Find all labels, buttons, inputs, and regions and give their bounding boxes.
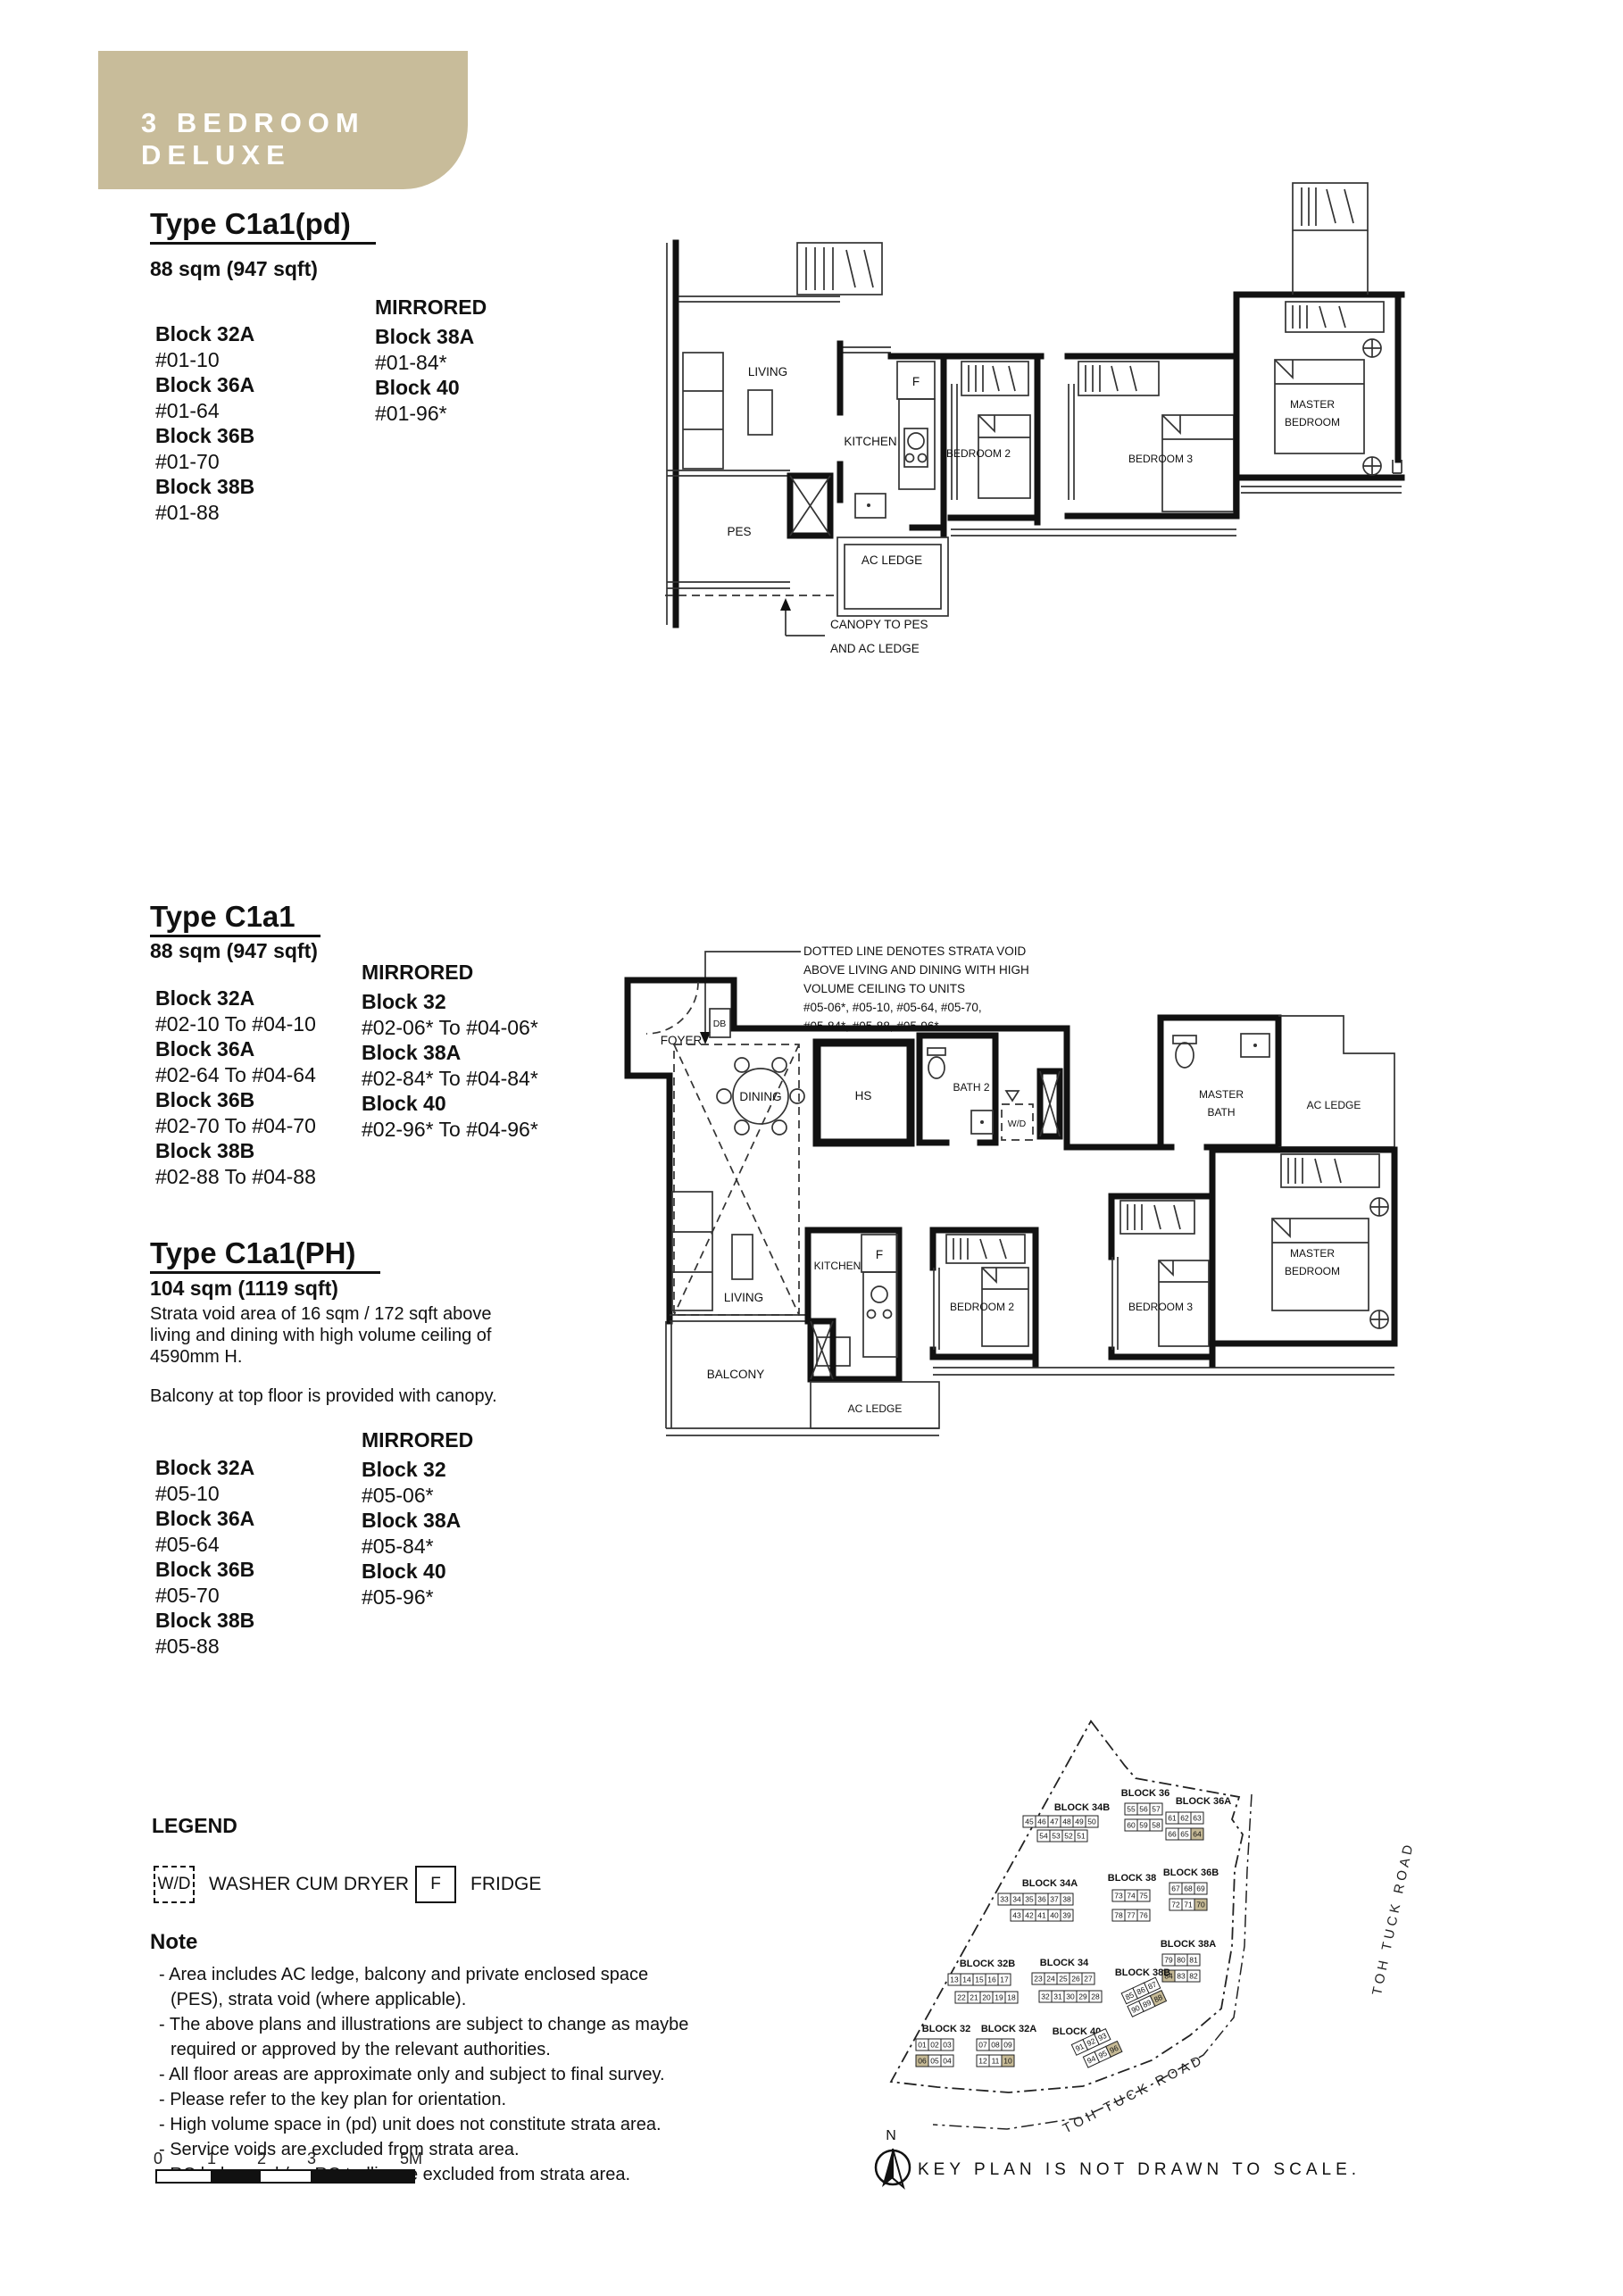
block-units: #05-88 [155, 1634, 254, 1660]
keyplan-unit-number: 73 [1114, 1892, 1123, 1901]
keyplan-unit-number: 08 [991, 2041, 1000, 2050]
plan2-strata-note-line4: #05-06*, #05-10, #05-64, #05-70, [803, 1001, 982, 1014]
keyplan-unit-number: 75 [1139, 1892, 1148, 1901]
keyplan-unit-number: 67 [1171, 1884, 1180, 1893]
plan1-label-master-line1: MASTER [1290, 398, 1335, 411]
block-units: #02-06* To #04-06* [362, 1015, 538, 1041]
scale-tick: 2 [257, 2150, 266, 2168]
keyplan-unit-number: 56 [1139, 1805, 1148, 1814]
keyplan-block: BLOCK 36A616263666564 [1166, 1796, 1231, 1840]
keyplan-unit-number: 71 [1184, 1901, 1193, 1909]
keyplan-unit-number: 11 [992, 2057, 1000, 2066]
keyplan-unit-number: 24 [1046, 1975, 1055, 1984]
section1-right-blocks: Block 38A#01-84*Block 40#01-96* [375, 324, 487, 426]
plan2-label-bedroom2: BEDROOM 2 [950, 1301, 1014, 1313]
block-units: #05-84* [362, 1534, 473, 1560]
keyplan-block-label: BLOCK 32 [922, 2024, 970, 2034]
keyplan-unit-number: 78 [1114, 1911, 1123, 1920]
keyplan-block-label: BLOCK 36B [1163, 1868, 1219, 1878]
keyplan-unit-number: 23 [1034, 1975, 1043, 1984]
plan2-label-kitchen: KITCHEN [814, 1260, 861, 1272]
block-units: #05-70 [155, 1583, 254, 1609]
section3-title-wrap: Type C1a1(PH) [150, 1236, 380, 1270]
block-units: #05-64 [155, 1532, 254, 1558]
keyplan-unit-number: 02 [930, 2041, 939, 2050]
keyplan-block: BLOCK 36B676869727170 [1163, 1868, 1219, 1910]
keyplan-unit-number: 13 [950, 1976, 959, 1984]
keyplan-block-label: BLOCK 38 [1108, 1873, 1156, 1884]
keyplan-unit-number: 35 [1025, 1895, 1034, 1904]
keyplan-unit-number: 54 [1039, 1832, 1048, 1841]
keyplan-caption: KEY PLAN IS NOT DRAWN TO SCALE. [918, 2160, 1361, 2179]
block-name: Block 32A [155, 986, 316, 1011]
keyplan-unit-number: 80 [1177, 1956, 1186, 1965]
block-units: #01-96* [375, 401, 487, 427]
keyplan-block: BLOCK 36555657605958 [1121, 1788, 1169, 1831]
keyplan-blocks: BLOCK 34B45464748495054535251BLOCK 36555… [916, 1788, 1231, 2070]
keyplan-unit-number: 72 [1171, 1901, 1180, 1909]
keyplan-unit-number: 82 [1189, 1972, 1198, 1981]
section2-title-wrap: Type C1a1 [150, 900, 320, 934]
plan1-label-kitchen: KITCHEN [844, 435, 896, 448]
keyplan-unit-number: 41 [1037, 1911, 1046, 1920]
keyplan-unit-number: 52 [1064, 1832, 1073, 1841]
keyplan-unit-number: 12 [978, 2057, 987, 2066]
floor-plan-type-c1a1: DOTTED LINE DENOTES STRATA VOID ABOVE LI… [616, 942, 1415, 1464]
plan1-label-living: LIVING [748, 365, 787, 379]
keyplan-unit-number: 60 [1127, 1821, 1136, 1830]
scale-bar-strip [155, 2169, 415, 2184]
keyplan-unit-number: 25 [1059, 1975, 1068, 1984]
keyplan-unit-number: 04 [943, 2057, 952, 2066]
block-units: #01-84* [375, 350, 487, 376]
plan2-label-masterbath-line2: BATH [1207, 1106, 1235, 1119]
section3-title: Type C1a1(PH) [150, 1236, 380, 1274]
block-name: Block 32A [155, 321, 254, 347]
section2-area: 88 sqm (947 sqft) [150, 939, 318, 963]
plan2-label-master-line1: MASTER [1290, 1247, 1335, 1260]
keyplan-unit-number: 43 [1012, 1911, 1021, 1920]
keyplan-unit-number: 47 [1050, 1818, 1059, 1826]
keyplan-unit-number: 10 [1003, 2057, 1012, 2066]
section3-area: 104 sqm (1119 sqft) [150, 1277, 338, 1301]
scale-bar: 01235M [154, 2150, 421, 2185]
section3-right-col: MIRRORED Block 32#05-06*Block 38A#05-84*… [362, 1428, 473, 1610]
note-item: - Please refer to the key plan for orien… [156, 2087, 692, 2112]
section1-title: Type C1a1(pd) [150, 207, 376, 245]
plan1-label-bedroom2: BEDROOM 2 [946, 447, 1011, 460]
block-name: Block 36A [155, 1506, 254, 1532]
keyplan-unit-number: 09 [1003, 2041, 1012, 2050]
keyplan-unit-number: 32 [1041, 1992, 1050, 2001]
keyplan-unit-number: 59 [1139, 1821, 1148, 1830]
plan2-label-db: DB [713, 1019, 727, 1029]
keyplan-block: BLOCK 32010203060504 [916, 2024, 970, 2067]
keyplan-unit-number: 53 [1052, 1832, 1061, 1841]
keyplan-block: BLOCK 38737475787776 [1108, 1873, 1156, 1921]
keyplan-unit-number: 40 [1050, 1911, 1059, 1920]
plan2-strata-note-line2: ABOVE LIVING AND DINING WITH HIGH [803, 963, 1029, 977]
keyplan-unit-number: 18 [1007, 1993, 1016, 2002]
keyplan-unit-number: 66 [1168, 1830, 1177, 1839]
legend-wd-label: WASHER CUM DRYER [209, 1874, 409, 1895]
block-name: Block 36B [155, 1557, 254, 1583]
section2-title: Type C1a1 [150, 900, 320, 937]
keyplan-unit-number: 29 [1078, 1992, 1087, 2001]
keyplan-unit-number: 74 [1127, 1892, 1136, 1901]
key-plan: TOH TUCK ROAD TOH TUCK ROAD BLOCK 34B454… [848, 1678, 1527, 2250]
plan1-label-bedroom3: BEDROOM 3 [1128, 453, 1193, 465]
keyplan-unit-number: 39 [1062, 1911, 1071, 1920]
plan2-label-dining: DINING [739, 1090, 781, 1103]
legend-fridge-label: FRIDGE [470, 1874, 541, 1895]
keyplan-block-label: BLOCK 32A [981, 2024, 1036, 2034]
plan2-label-balcony: BALCONY [707, 1368, 765, 1381]
section3-right-blocks: Block 32#05-06*Block 38A#05-84*Block 40#… [362, 1457, 473, 1610]
keyplan-block: BLOCK 32B13141516172221201918 [948, 1959, 1018, 2003]
section2-right-blocks: Block 32#02-06* To #04-06*Block 38A#02-8… [362, 989, 538, 1142]
scale-tick: 5M [400, 2150, 422, 2168]
keyplan-block-label: BLOCK 36 [1121, 1788, 1169, 1799]
scale-tick: 3 [307, 2150, 316, 2168]
keyplan-block: BLOCK 34A3334353637384342414039 [998, 1878, 1078, 1921]
block-name: Block 36B [155, 423, 254, 449]
block-units: #02-84* To #04-84* [362, 1066, 538, 1092]
note-item: - High volume space in (pd) unit does no… [156, 2112, 692, 2137]
section1-title-wrap: Type C1a1(pd) [150, 207, 376, 241]
keyplan-unit-number: 16 [987, 1976, 996, 1984]
section2-mirrored-label: MIRRORED [362, 961, 538, 985]
section1-left-blocks: Block 32A#01-10Block 36A#01-64Block 36B#… [155, 321, 254, 525]
keyplan-unit-number: 62 [1180, 1814, 1189, 1823]
block-units: #05-96* [362, 1585, 473, 1610]
keyplan-unit-number: 79 [1164, 1956, 1173, 1965]
section2-right-col: MIRRORED Block 32#02-06* To #04-06*Block… [362, 961, 538, 1142]
keyplan-block: BLOCK 38B858687908988 [1115, 1967, 1170, 2017]
keyplan-block: BLOCK 3423242526273231302928 [1032, 1958, 1102, 2002]
section3-para1: Strata void area of 16 sqm / 172 sqft ab… [150, 1303, 507, 1368]
keyplan-block-label: BLOCK 34B [1054, 1802, 1110, 1813]
block-name: Block 32 [362, 1457, 473, 1483]
legend-wd-row: W/D WASHER CUM DRYER [154, 1866, 409, 1903]
legend-heading: LEGEND [152, 1814, 237, 1838]
section1-right-col: MIRRORED Block 38A#01-84*Block 40#01-96* [375, 295, 487, 426]
keyplan-unit-number: 50 [1087, 1818, 1096, 1826]
block-units: #01-70 [155, 449, 254, 475]
keyplan-unit-number: 27 [1084, 1975, 1093, 1984]
keyplan-unit-number: 26 [1071, 1975, 1080, 1984]
keyplan-unit-number: 83 [1177, 1972, 1186, 1981]
keyplan-unit-number: 14 [962, 1976, 971, 1984]
plan2-label-fridge: F [876, 1248, 883, 1261]
keyplan-unit-number: 22 [957, 1993, 966, 2002]
block-name: Block 32 [362, 989, 538, 1015]
keyplan-unit-number: 19 [995, 1993, 1003, 2002]
keyplan-block-label: BLOCK 32B [960, 1959, 1015, 1969]
block-name: Block 38B [155, 474, 254, 500]
floor-plan-type-c1a1pd: LIVING PES F KITCHEN AC LEDGE CANOPY TO … [656, 174, 1411, 665]
legend-fridge-row: F FRIDGE [415, 1866, 541, 1903]
keyplan-unit-number: 07 [978, 2041, 987, 2050]
legend-wd-symbol: W/D [154, 1866, 195, 1903]
block-units: #01-64 [155, 398, 254, 424]
scale-tick: 1 [207, 2150, 216, 2168]
plan2-label-bedroom3: BEDROOM 3 [1128, 1301, 1193, 1313]
keyplan-unit-number: 45 [1025, 1818, 1034, 1826]
keyplan-unit-number: 31 [1053, 1992, 1062, 2001]
type-banner-title: 3 BEDROOM DELUXE [141, 107, 468, 171]
keyplan-unit-number: 42 [1025, 1911, 1034, 1920]
keyplan-unit-number: 49 [1075, 1818, 1084, 1826]
brochure-page: 3 BEDROOM DELUXE Type C1a1(pd) 88 sqm (9… [0, 0, 1623, 2296]
block-name: Block 38B [155, 1608, 254, 1634]
block-name: Block 36A [155, 372, 254, 398]
note-item: - Area includes AC ledge, balcony and pr… [156, 1962, 692, 2012]
legend-fridge-symbol: F [415, 1866, 456, 1903]
type-banner: 3 BEDROOM DELUXE [98, 51, 468, 189]
keyplan-block-label: BLOCK 38B [1115, 1967, 1170, 1978]
block-units: #02-96* To #04-96* [362, 1117, 538, 1143]
plan1-canopy-note-line1: CANOPY TO PES [830, 618, 928, 631]
section3-para2: Balcony at top floor is provided with ca… [150, 1385, 507, 1407]
note-item: - The above plans and illustrations are … [156, 2012, 692, 2062]
keyplan-unit-number: 36 [1037, 1895, 1046, 1904]
block-units: #02-70 To #04-70 [155, 1113, 316, 1139]
section1-mirrored-label: MIRRORED [375, 295, 487, 320]
keyplan-unit-number: 57 [1152, 1805, 1161, 1814]
note-item: - All floor areas are approximate only a… [156, 2062, 692, 2087]
keyplan-unit-number: 05 [930, 2057, 939, 2066]
section1-area: 88 sqm (947 sqft) [150, 257, 318, 281]
block-name: Block 36A [155, 1036, 316, 1062]
keyplan-unit-number: 65 [1180, 1830, 1189, 1839]
plan2-label-ac-ledge-bottom: AC LEDGE [848, 1402, 903, 1415]
keyplan-unit-number: 76 [1139, 1911, 1148, 1920]
plan2-label-hs: HS [855, 1089, 872, 1102]
plan2-label-bath2: BATH 2 [953, 1081, 989, 1094]
plan2-strata-note-line3: VOLUME CEILING TO UNITS [803, 982, 965, 995]
note-heading: Note [150, 1930, 197, 1955]
plan2-label-living: LIVING [724, 1291, 763, 1304]
keyplan-unit-number: 48 [1062, 1818, 1071, 1826]
plan2-strata-note-line1: DOTTED LINE DENOTES STRATA VOID [803, 944, 1027, 958]
keyplan-unit-number: 34 [1012, 1895, 1021, 1904]
keyplan-unit-number: 58 [1152, 1821, 1161, 1830]
keyplan-unit-number: 03 [943, 2041, 952, 2050]
block-name: Block 40 [375, 375, 487, 401]
block-name: Block 32A [155, 1455, 254, 1481]
keyplan-unit-number: 17 [1000, 1976, 1009, 1984]
keyplan-unit-number: 30 [1066, 1992, 1075, 2001]
block-units: #01-10 [155, 347, 254, 373]
scale-tick: 0 [154, 2150, 162, 2168]
block-name: Block 38A [362, 1508, 473, 1534]
keyplan-unit-number: 70 [1196, 1901, 1205, 1909]
keyplan-unit-number: 81 [1189, 1956, 1198, 1965]
keyplan-block: BLOCK 34B45464748495054535251 [1023, 1802, 1110, 1842]
keyplan-block-label: BLOCK 36A [1176, 1796, 1231, 1807]
keyplan-unit-number: 15 [975, 1976, 984, 1984]
keyplan-unit-number: 64 [1193, 1830, 1202, 1839]
keyplan-unit-number: 28 [1091, 1992, 1100, 2001]
north-label: N [886, 2128, 896, 2143]
keyplan-unit-number: 33 [1000, 1895, 1009, 1904]
section3-mirrored-label: MIRRORED [362, 1428, 473, 1452]
plan1-label-master-line2: BEDROOM [1285, 416, 1340, 428]
block-name: Block 36B [155, 1087, 316, 1113]
keyplan-unit-number: 46 [1037, 1818, 1046, 1826]
keyplan-unit-number: 51 [1077, 1832, 1086, 1841]
keyplan-unit-number: 21 [970, 1993, 978, 2002]
block-name: Block 38A [375, 324, 487, 350]
keyplan-unit-number: 69 [1196, 1884, 1205, 1893]
road-label-right: TOH TUCK ROAD [1369, 1840, 1417, 1996]
keyplan-unit-number: 37 [1050, 1895, 1059, 1904]
block-units: #02-64 To #04-64 [155, 1062, 316, 1088]
block-units: #02-88 To #04-88 [155, 1164, 316, 1190]
keyplan-unit-number: 20 [982, 1993, 991, 2002]
keyplan-unit-number: 06 [918, 2057, 927, 2066]
keyplan-unit-number: 38 [1062, 1895, 1071, 1904]
plan1-canopy-note-line2: AND AC LEDGE [830, 642, 920, 655]
keyplan-unit-number: 63 [1193, 1814, 1202, 1823]
keyplan-unit-number: 68 [1184, 1884, 1193, 1893]
keyplan-block-label: BLOCK 34 [1040, 1958, 1089, 1968]
block-units: #02-10 To #04-10 [155, 1011, 316, 1037]
plan2-label-ac-ledge-top: AC LEDGE [1307, 1099, 1361, 1111]
plan2-label-wd: W/D [1008, 1119, 1027, 1129]
block-units: #01-88 [155, 500, 254, 526]
plan1-label-pes: PES [727, 525, 751, 538]
keyplan-unit-number: 61 [1168, 1814, 1177, 1823]
road-label-bottom: TOH TUCK ROAD [1061, 2052, 1207, 2137]
block-units: #05-10 [155, 1481, 254, 1507]
keyplan-block-label: BLOCK 34A [1022, 1878, 1078, 1889]
section3-left-blocks: Block 32A#05-10Block 36A#05-64Block 36B#… [155, 1455, 254, 1659]
keyplan-unit-number: 55 [1127, 1805, 1136, 1814]
block-name: Block 38A [362, 1040, 538, 1066]
plan2-label-master-line2: BEDROOM [1285, 1265, 1340, 1277]
keyplan-unit-number: 01 [918, 2041, 927, 2050]
block-name: Block 38B [155, 1138, 316, 1164]
plan1-label-ac-ledge: AC LEDGE [861, 553, 922, 567]
keyplan-block-label: BLOCK 38A [1161, 1939, 1216, 1950]
block-units: #05-06* [362, 1483, 473, 1509]
keyplan-unit-number: 77 [1127, 1911, 1136, 1920]
keyplan-block: BLOCK 40919293949596 [1053, 2026, 1122, 2070]
block-name: Block 40 [362, 1091, 538, 1117]
block-name: Block 40 [362, 1559, 473, 1585]
plan1-label-fridge: F [912, 375, 920, 388]
section2-left-blocks: Block 32A#02-10 To #04-10Block 36A#02-64… [155, 986, 316, 1189]
plan2-label-masterbath-line1: MASTER [1199, 1088, 1244, 1101]
keyplan-block: BLOCK 32A070809121110 [977, 2024, 1036, 2067]
